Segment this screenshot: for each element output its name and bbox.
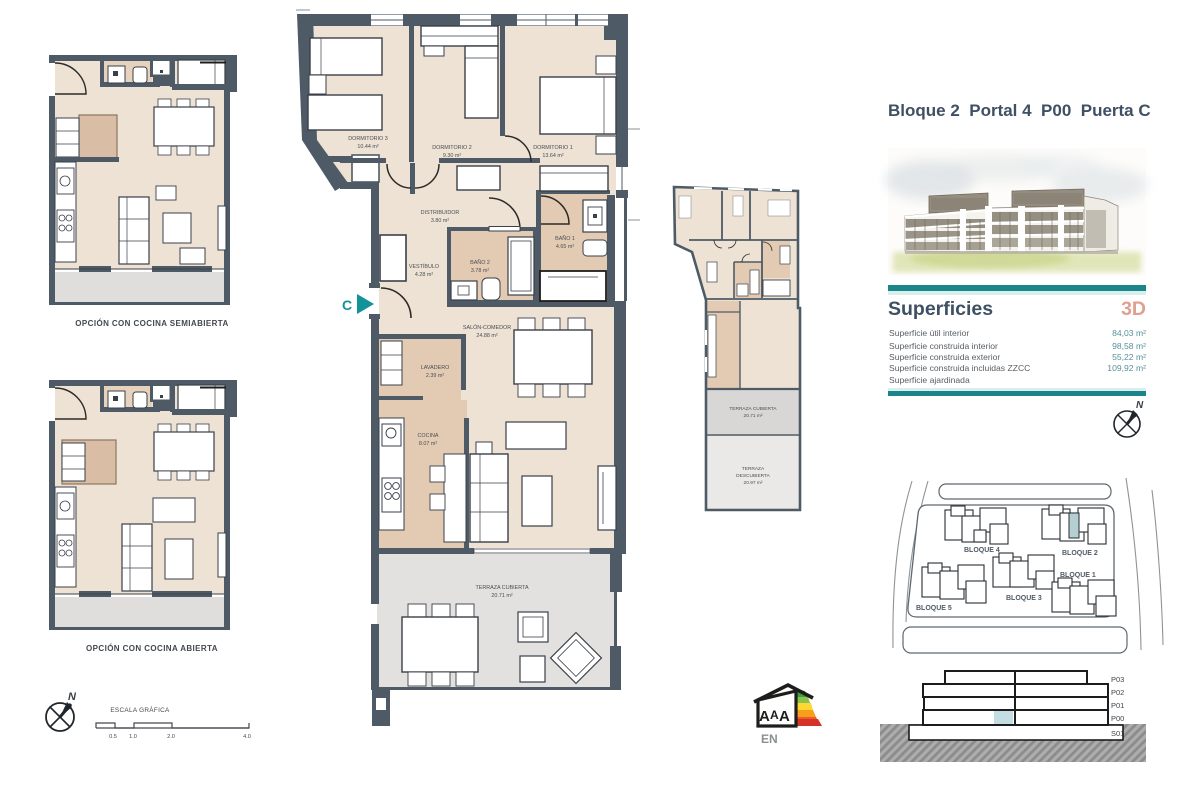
svg-text:TERRAZA CUBIERTA: TERRAZA CUBIERTA [475, 585, 529, 591]
svg-text:DORMITORIO 3: DORMITORIO 3 [348, 136, 387, 142]
svg-text:3.80 m²: 3.80 m² [431, 218, 449, 224]
svg-text:A: A [770, 708, 779, 722]
svg-text:N: N [1136, 400, 1144, 411]
svg-text:8.07 m²: 8.07 m² [419, 441, 437, 447]
svg-text:DISTRIBUIDOR: DISTRIBUIDOR [421, 210, 460, 216]
svg-text:BAÑO 2: BAÑO 2 [470, 259, 490, 266]
svg-text:P03: P03 [1111, 675, 1124, 684]
svg-text:C: C [342, 297, 352, 313]
svg-text:2.0: 2.0 [167, 734, 175, 740]
svg-text:10.44 m²: 10.44 m² [357, 144, 378, 150]
svg-text:Superficie construida exterior: Superficie construida exterior [889, 352, 1000, 362]
svg-text:DESCUBIERTA: DESCUBIERTA [736, 473, 770, 479]
svg-text:TERRAZA: TERRAZA [742, 466, 765, 472]
svg-text:BLOQUE 2: BLOQUE 2 [1062, 550, 1098, 557]
svg-text:A: A [779, 708, 790, 725]
svg-text:BAÑO 1: BAÑO 1 [555, 235, 575, 242]
svg-text:VESTÍBULO: VESTÍBULO [409, 263, 439, 270]
svg-text:3.78 m²: 3.78 m² [471, 268, 489, 274]
svg-text:4.0: 4.0 [243, 734, 251, 740]
svg-text:ESCALA GRÁFICA: ESCALA GRÁFICA [110, 705, 170, 714]
svg-text:EN: EN [761, 732, 778, 746]
svg-text:COCINA: COCINA [418, 433, 439, 439]
svg-text:20.97 m²: 20.97 m² [744, 480, 763, 486]
svg-text:Superficie construida incluida: Superficie construida incluidas ZZCC [889, 363, 1030, 373]
svg-text:4.28 m²: 4.28 m² [415, 272, 433, 278]
svg-text:BLOQUE 3: BLOQUE 3 [1006, 595, 1042, 602]
svg-text:2.39 m²: 2.39 m² [426, 373, 444, 379]
svg-text:S01: S01 [1111, 729, 1124, 738]
svg-text:DORMITORIO 1: DORMITORIO 1 [533, 145, 572, 151]
svg-text:9.30 m²: 9.30 m² [443, 153, 461, 159]
svg-text:109,92 m²: 109,92 m² [1107, 363, 1146, 373]
svg-text:Bloque 2 Portal 4 P00 Puert: Bloque 2 Portal 4 P00 Puerta C [888, 101, 1151, 120]
svg-text:LAVADERO: LAVADERO [421, 365, 450, 371]
svg-text:Superficies: Superficies [888, 298, 993, 320]
svg-text:DORMITORIO 2: DORMITORIO 2 [432, 145, 471, 151]
svg-text:55,22 m²: 55,22 m² [1112, 352, 1146, 362]
svg-text:A: A [759, 708, 770, 725]
svg-text:Superficie útil interior: Superficie útil interior [889, 328, 969, 338]
svg-text:P02: P02 [1111, 688, 1124, 697]
svg-text:OPCIÓN CON COCINA SEMIABIERTA: OPCIÓN CON COCINA SEMIABIERTA [75, 319, 228, 328]
svg-text:20.71 m²: 20.71 m² [491, 593, 512, 599]
svg-text:20.71 m²: 20.71 m² [744, 413, 763, 419]
svg-text:Superficie ajardinada: Superficie ajardinada [889, 375, 970, 385]
svg-text:TERRAZA CUBIERTA: TERRAZA CUBIERTA [729, 406, 777, 412]
svg-text:4.65 m²: 4.65 m² [556, 244, 574, 250]
svg-text:P00: P00 [1111, 714, 1124, 723]
svg-text:0.5: 0.5 [109, 734, 117, 740]
svg-text:N: N [68, 691, 77, 703]
svg-text:1.0: 1.0 [129, 734, 137, 740]
svg-text:BLOQUE 5: BLOQUE 5 [916, 605, 952, 612]
svg-text:24.88 m²: 24.88 m² [476, 333, 497, 339]
svg-text:BLOQUE 4: BLOQUE 4 [964, 547, 1000, 554]
svg-text:P01: P01 [1111, 701, 1124, 710]
svg-text:13.64 m²: 13.64 m² [542, 153, 563, 159]
svg-text:SALÓN-COMEDOR: SALÓN-COMEDOR [463, 324, 511, 331]
svg-text:3D: 3D [1121, 298, 1146, 320]
svg-text:84,03 m²: 84,03 m² [1112, 328, 1146, 338]
svg-text:98,58 m²: 98,58 m² [1112, 341, 1146, 351]
svg-text:OPCIÓN CON COCINA ABIERTA: OPCIÓN CON COCINA ABIERTA [86, 644, 218, 653]
svg-text:Superficie construida interior: Superficie construida interior [889, 341, 998, 351]
